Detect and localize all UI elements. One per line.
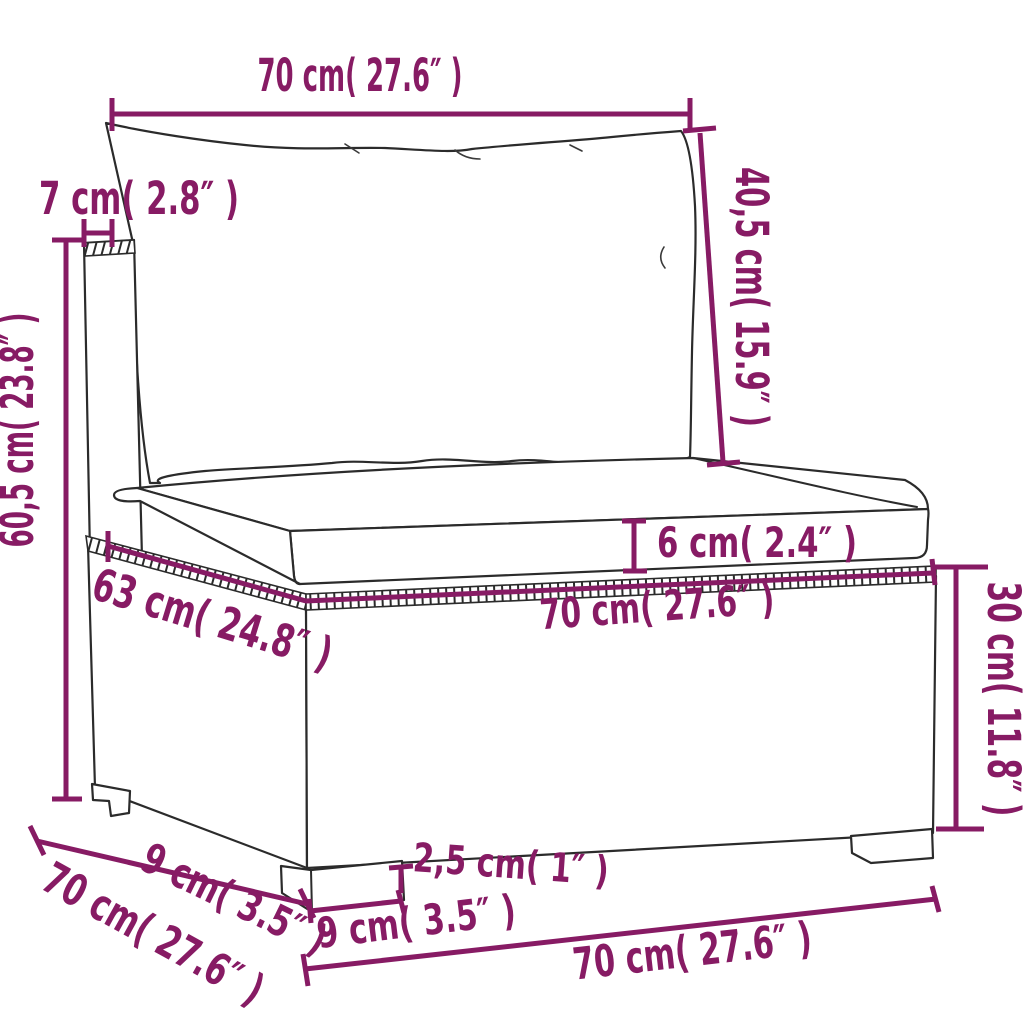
label-seat-cushion-thickness: 6 cm( 2.4″ ) — [657, 518, 857, 567]
dimension-total-height — [52, 240, 82, 799]
dimension-diagram: 70 cm( 27.6″ ) 7 cm( 2.8″ ) 60,5 cm( 23.… — [0, 0, 1024, 1024]
label-base-height: 30 cm( 11.8″ ) — [977, 582, 1024, 817]
diagram-canvas: 70 cm( 27.6″ ) 7 cm( 2.8″ ) 60,5 cm( 23.… — [0, 0, 1024, 1024]
dimension-top-width — [112, 98, 690, 131]
label-backrest-thickness: 7 cm( 2.8″ ) — [39, 172, 239, 225]
label-top-width: 70 cm( 27.6″ ) — [258, 49, 463, 102]
backrest-post — [84, 240, 142, 558]
backrest-post-body — [84, 240, 142, 558]
label-backrest-height: 40,5 cm( 15.9″ ) — [725, 167, 778, 427]
label-total-height: 60,5 cm( 23.8″ ) — [0, 313, 44, 548]
leg-front-right — [851, 829, 933, 863]
